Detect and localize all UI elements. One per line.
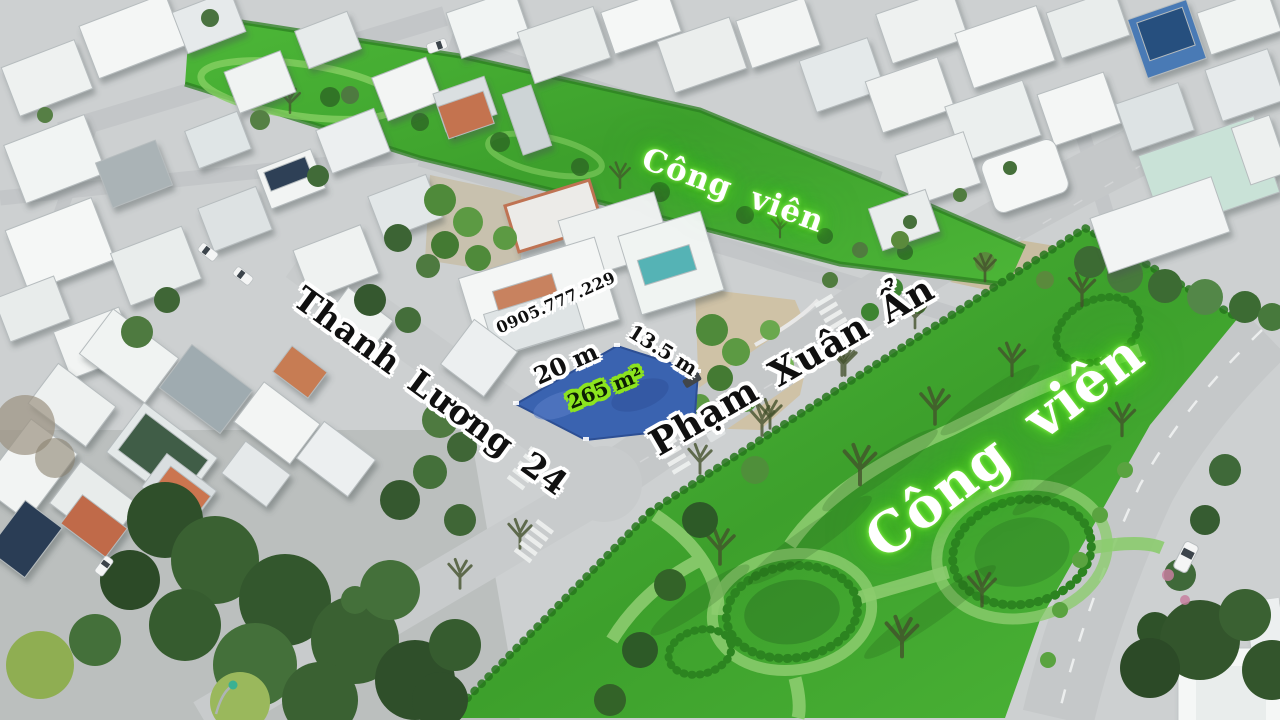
aerial-photo: Công viên Công viên Thanh Lương 24 Phạm … [0,0,1280,720]
